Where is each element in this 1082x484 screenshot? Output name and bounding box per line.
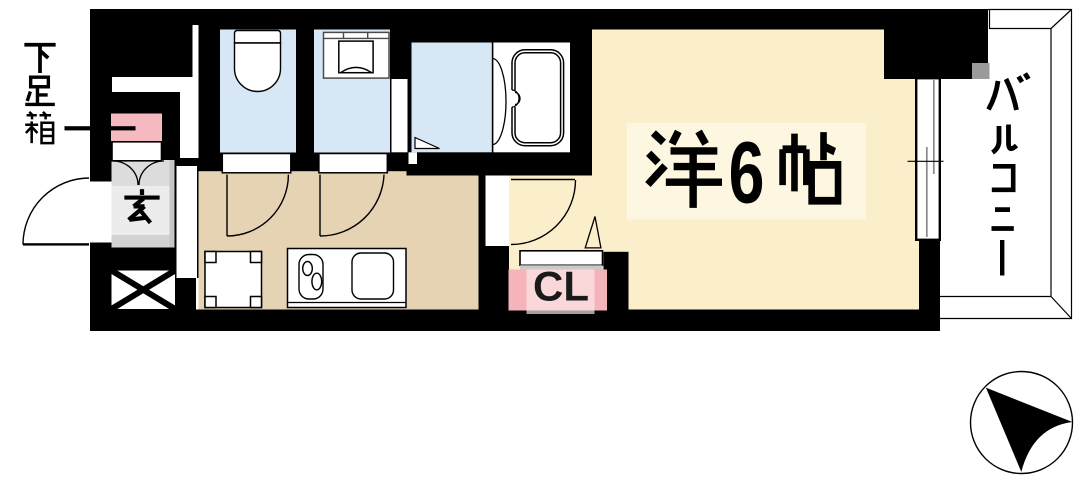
svg-text:6: 6 [729, 125, 765, 222]
svg-text:CL: CL [533, 263, 589, 310]
